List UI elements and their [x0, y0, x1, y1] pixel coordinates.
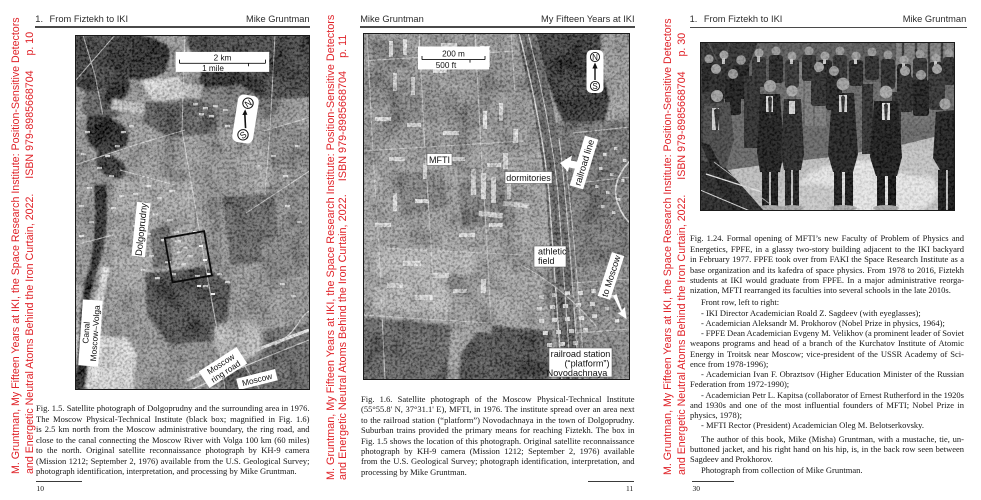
- svg-text:1 mile: 1 mile: [202, 64, 224, 73]
- svg-text:(“platform”): (“platform”): [565, 359, 610, 369]
- svg-text:Novodachnaya: Novodachnaya: [547, 368, 609, 378]
- svg-text:S: S: [592, 82, 597, 91]
- svg-text:MFTI: MFTI: [429, 155, 450, 165]
- svg-text:500 ft: 500 ft: [436, 61, 457, 70]
- svg-text:200 m: 200 m: [442, 49, 465, 58]
- svg-text:railroad station: railroad station: [551, 349, 611, 359]
- svg-text:N: N: [592, 53, 598, 62]
- svg-text:dormitories: dormitories: [506, 173, 551, 183]
- svg-text:field: field: [538, 256, 555, 266]
- svg-text:2 km: 2 km: [213, 54, 231, 63]
